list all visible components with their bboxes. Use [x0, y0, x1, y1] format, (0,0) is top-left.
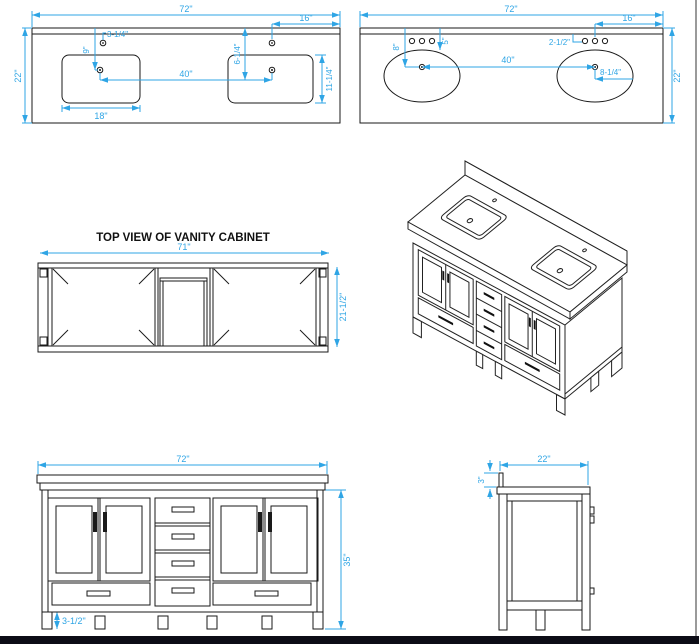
dim-faucet-offset: 3-1/4"	[107, 30, 128, 39]
dim-overall-width: 72"	[504, 5, 517, 14]
page-right-border	[695, 0, 697, 637]
cabinet-top-view-drawing: TOP VIEW OF VANITY CABINET 71" 21-1/2"	[20, 222, 365, 372]
countertop-rect-sinks-drawing: 72" 16" 22" 9" 3-1/4" 6-1/4" 40" 11-1/4"	[10, 5, 350, 135]
dim-toe-kick: 3-1/2"	[62, 616, 86, 626]
dim-backsplash-height: 3"	[477, 476, 486, 483]
dim-height: 35"	[342, 553, 352, 566]
dim-overall-depth: 22"	[13, 69, 23, 82]
dim-back-to-faucet: 5"	[441, 37, 450, 44]
vanity-spec-sheet: 72" 16" 22" 9" 3-1/4" 6-1/4" 40" 11-1/4"	[0, 0, 699, 644]
vanity-side-view-drawing: 22" 3"	[470, 455, 620, 640]
dim-width: 72"	[176, 455, 189, 464]
dim-faucet-from-right: 16"	[299, 13, 312, 23]
dim-sink-depth: 11-1/4"	[325, 66, 334, 91]
dim-back-to-drain: 8"	[392, 43, 401, 50]
dim-overall-width: 72"	[179, 5, 192, 14]
cabinet-outline	[37, 475, 328, 629]
dim-sink-width: 18"	[94, 111, 107, 121]
dim-back-to-faucet: 6-1/4"	[233, 43, 242, 64]
dim-faucet-from-right: 16"	[622, 13, 635, 23]
vanity-isometric-drawing	[380, 150, 699, 440]
cabinet-outline	[38, 263, 328, 352]
countertop-oval-sinks-drawing: 72" 16" 2-1/2" 8" 5" 40" 8-1/4" 22"	[353, 5, 699, 135]
dim-drain-spacing: 40"	[501, 55, 514, 65]
dim-drain-to-edge: 8-1/4"	[600, 68, 621, 77]
dim-depth: 22"	[537, 455, 550, 464]
dim-drain-spacing: 40"	[179, 69, 192, 79]
cabinet-outline	[497, 473, 594, 630]
page-bottom-border	[0, 636, 699, 644]
dim-back-to-drain: 9"	[82, 46, 91, 53]
dim-hole-spacing: 2-1/2"	[549, 38, 570, 47]
dim-width: 71"	[177, 242, 190, 252]
dim-overall-depth: 22"	[672, 69, 682, 82]
dim-depth: 21-1/2"	[338, 293, 348, 322]
vanity-front-view-drawing: 72" 35" 3-1/2"	[25, 455, 360, 640]
